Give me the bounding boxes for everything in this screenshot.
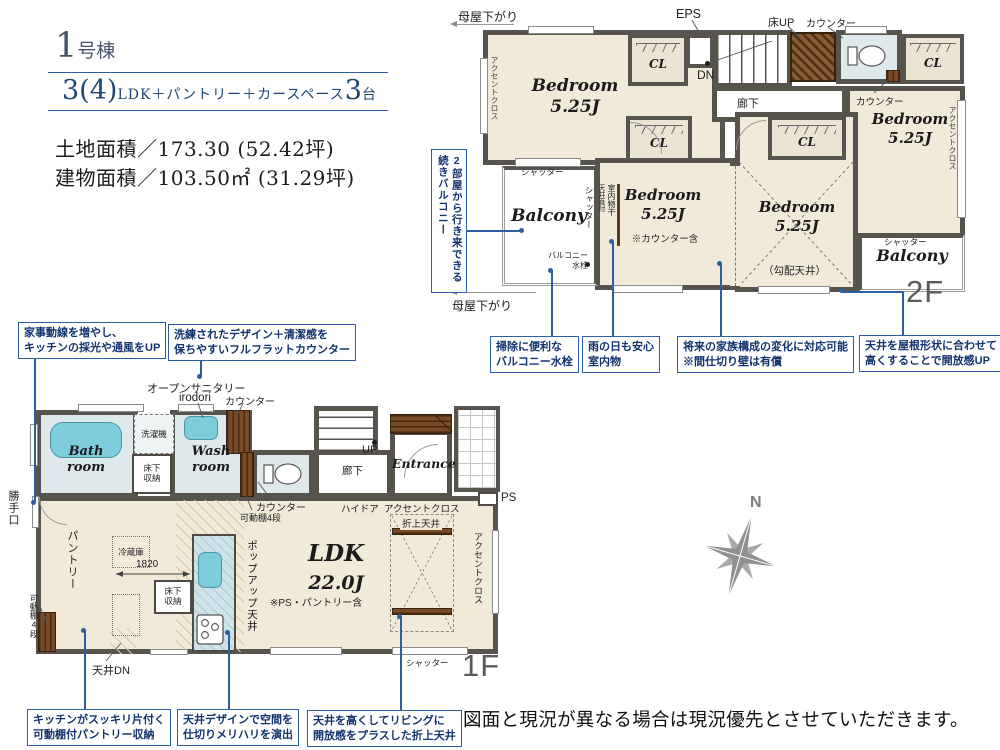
sloped-ceiling-note: （勾配天井） xyxy=(763,263,826,278)
f1-toilet-shelf-wood xyxy=(240,452,254,497)
dimension-1820: 1820 xyxy=(136,559,158,570)
leader-line xyxy=(720,264,722,337)
counter-included-note: ※カウンター含 xyxy=(613,231,717,245)
floor-up-label: 床UP xyxy=(768,14,794,30)
closet-label: CL xyxy=(924,56,942,70)
balcony-left-name: Balcony xyxy=(510,206,588,227)
window xyxy=(613,285,683,293)
compass-north-label: N xyxy=(750,494,762,512)
window xyxy=(392,647,468,655)
window xyxy=(758,286,830,294)
callout-line: 掃除に便利な xyxy=(496,341,562,353)
callout-line: 室内物 xyxy=(588,356,621,368)
unit-title: 1号棟 xyxy=(55,26,115,66)
bedroom-topleft-name: Bedroom 5.25J xyxy=(505,76,645,119)
eps-label: EPS xyxy=(676,7,701,21)
hallway-label-1f: 廊下 xyxy=(342,463,363,478)
f1-washer-space: 洗濯機 xyxy=(134,414,174,454)
room-size: 5.25J xyxy=(888,129,932,147)
window xyxy=(957,100,966,218)
room-size: 22.0J xyxy=(308,572,363,594)
room-name: Bedroom xyxy=(625,186,702,204)
closet-label: CL xyxy=(649,57,667,71)
callout-line: 2部屋から行き来できる xyxy=(451,155,463,283)
compass-rose-icon xyxy=(688,494,796,610)
callout-line: 高くすることで開放感UP xyxy=(865,355,990,367)
building-area: 建物面積／103.50㎡ (31.29坪) xyxy=(55,162,355,191)
callout-line: 天井を高くしてリビングに xyxy=(313,715,445,727)
bathroom-name: Bath room xyxy=(54,444,118,477)
accent-cloth-label-1f-h: アクセントクロス xyxy=(384,501,460,515)
f2-closet-sloped: CL xyxy=(768,116,846,160)
room-name: room xyxy=(67,460,105,475)
moya-sagari-top-label: 母屋下がり xyxy=(458,8,518,25)
ldk-note: ※PS・パントリー含 xyxy=(270,594,362,609)
f1-porch xyxy=(454,406,500,492)
room-size: 5.25J xyxy=(550,97,599,117)
callout-line: 開放感をプラスした折上天井 xyxy=(313,730,456,742)
high-door-label: ハイドア xyxy=(341,501,379,515)
f1-floor-storage-wash: 床下収納 xyxy=(132,454,172,494)
disclaimer-text: 図面と現況が異なる場合は現況優先とさせていただきます。 xyxy=(463,706,969,732)
window xyxy=(492,530,499,614)
back-door-label: 勝手口 xyxy=(5,490,21,540)
coffered-ceiling-label: 折上天井 xyxy=(400,516,442,530)
callout-line: 洗練されたデザイン＋清潔感を xyxy=(174,329,328,341)
callout-future-partition: 将来の家族構成の変化に対応可能 ※間仕切り壁は有償 xyxy=(677,336,854,373)
room-name: Bedroom xyxy=(532,76,619,96)
fridge-label: 冷蔵庫 xyxy=(118,546,144,558)
faucet-dot xyxy=(585,262,590,267)
window xyxy=(178,404,214,412)
faucet-line1: バルコニー xyxy=(548,251,588,260)
counter-label-2f-bedroom: カウンター xyxy=(856,94,904,108)
callout-line: 可動棚付パントリー収納 xyxy=(33,729,155,741)
f2-stairs xyxy=(712,30,792,88)
plan-number: 3(4) xyxy=(62,75,117,106)
callout-line: 天井を屋根形状に合わせて xyxy=(865,340,997,352)
room-size: 5.25J xyxy=(775,217,819,235)
counter-label-1f-top: カウンター xyxy=(225,393,275,408)
room-name: Bedroom xyxy=(759,198,836,216)
callout-line: ※間仕切り壁は有償 xyxy=(683,356,782,368)
shutter-label-2f-right: シャッター xyxy=(884,236,927,248)
callout-housework-line: 家事動線を増やし、 キッチンの採光や通風をUP xyxy=(18,322,166,359)
land-area: 土地面積／173.30 (52.42坪) xyxy=(55,133,334,162)
leader-line xyxy=(612,242,614,337)
leader-dot xyxy=(31,500,36,505)
leader-dot xyxy=(548,268,553,273)
counter-label-2f-top: カウンター xyxy=(806,15,856,30)
irodori-label: irodori xyxy=(179,392,211,404)
header-rule-top xyxy=(48,72,388,73)
storage-label: 床下収納 xyxy=(143,464,160,484)
dn-dot xyxy=(705,61,710,66)
plan-cars-unit: 台 xyxy=(362,84,376,104)
closet-label: CL xyxy=(798,135,816,149)
tenjo-jika-text: 天井直付 xyxy=(598,184,605,212)
room-name: Bedroom xyxy=(872,110,949,128)
callout-pantry-storage: キッチンがスッキリ片付く 可動棚付パントリー収納 xyxy=(27,709,171,746)
window xyxy=(270,647,342,655)
plan-description: LDK＋パントリー＋カースペース xyxy=(117,84,344,104)
sink-icon xyxy=(184,416,218,440)
leader-dot xyxy=(839,288,844,293)
f1-ps-shaft xyxy=(478,492,498,506)
callout-line: 雨の日も安心 xyxy=(588,341,654,353)
shutter-label-1f: シャッター xyxy=(406,657,449,669)
leader-dot xyxy=(225,630,230,635)
hallway-label-2f: 廊下 xyxy=(737,95,759,111)
balcony-right-name: Balcony xyxy=(872,246,952,266)
kitchen-sink-icon xyxy=(198,552,222,588)
ceiling-down-label: 天井DN xyxy=(92,662,130,678)
accent-cloth-label-1f-v: アクセントクロス xyxy=(472,532,485,614)
shutter-label-2f-vertical: シャッター xyxy=(583,186,595,256)
closet-rail-icon xyxy=(910,43,955,52)
pantry-shelf-wood xyxy=(38,612,56,652)
callout-line: 保ちやすいフルフラットカウンター xyxy=(174,344,350,356)
closet-rail-icon xyxy=(636,43,680,52)
ldk-name: LDK 22.0J xyxy=(294,540,378,595)
toilet-icon xyxy=(262,458,306,490)
room-size: 5.25J xyxy=(641,205,685,223)
leader-dot xyxy=(609,239,614,244)
callout-coffered-ceiling: 天井を高くしてリビングに 開放感をプラスした折上天井 xyxy=(307,710,462,747)
bedroom-mid-name: Bedroom 5.25J xyxy=(598,186,728,224)
f2-floor-up-storage xyxy=(790,32,836,82)
callout-high-ceiling: 天井を屋根形状に合わせて 高くすることで開放感UP xyxy=(859,335,1000,372)
callout-line: キッチンがスッキリ片付く xyxy=(33,714,165,726)
washroom-name: Wash room xyxy=(180,444,242,477)
entrance-step-wood xyxy=(390,414,452,434)
window xyxy=(78,404,144,412)
moya-sagari-bottom-label: 母屋下がり xyxy=(452,297,512,314)
popup-ceiling-label: ポップアップ天井 xyxy=(245,540,260,640)
leader-line xyxy=(842,291,903,293)
unit-number: 1 xyxy=(55,26,77,66)
f2-closet-topright: CL xyxy=(902,34,964,84)
room-name: room xyxy=(192,460,230,475)
moya-arrowhead-icon xyxy=(450,21,457,27)
callout-line: 仕切りメリハリを演出 xyxy=(183,729,293,741)
shelf-label-1f-left: 可動棚4段 xyxy=(28,594,40,652)
leader-line xyxy=(84,631,86,709)
up-dot xyxy=(372,440,377,445)
pantry-shelf-dashed xyxy=(112,594,140,636)
moya-arrow-line-bottom xyxy=(456,292,536,293)
accent-cloth-label-2f-right: アクセントクロス xyxy=(947,106,958,206)
floor-label-2f: 2F xyxy=(906,274,944,310)
callout-line: 天井デザインで空間を xyxy=(183,714,293,726)
callout-line: 続きバルコニー xyxy=(437,155,449,236)
bedroom-sloped-name: Bedroom 5.25J xyxy=(742,198,852,236)
window xyxy=(528,26,594,34)
leader-line xyxy=(400,617,402,710)
up-label: UP xyxy=(362,444,377,456)
header-rule-bottom xyxy=(48,110,388,111)
pantry-label: パントリー xyxy=(64,530,80,606)
plan-type: 3(4) LDK＋パントリー＋カースペース 3 台 xyxy=(62,75,376,106)
down-label: DN xyxy=(697,68,714,82)
plan-cars: 3 xyxy=(345,75,362,106)
closet-rail-icon xyxy=(778,125,837,134)
shutter-label-2f-top: シャッター xyxy=(521,166,564,178)
leader-dot xyxy=(81,628,86,633)
leader-dot xyxy=(717,261,722,266)
f1-floor-storage-kitchen: 床下収納 xyxy=(154,580,192,614)
washer-label: 洗濯機 xyxy=(141,428,167,440)
shelf-label-1f-mid: 可動棚4段 xyxy=(240,511,281,524)
leader-line xyxy=(467,230,523,232)
floor-label-1f: 1F xyxy=(462,648,500,684)
callout-flat-counter: 洗練されたデザイン＋清潔感を 保ちやすいフルフラットカウンター xyxy=(168,324,356,361)
leader-line xyxy=(551,271,553,337)
unit-suffix: 号棟 xyxy=(77,40,115,62)
leader-dot xyxy=(197,374,202,379)
callout-line: 家事動線を増やし、 xyxy=(24,327,123,339)
room-name: Bath xyxy=(69,444,104,459)
callout-balcony-faucet: 掃除に便利な バルコニー水栓 xyxy=(490,336,579,373)
toilet-icon xyxy=(846,40,890,72)
callout-indoor-drying: 雨の日も安心 室内物 xyxy=(582,336,660,373)
callout-tsuzuki-balcony: 2部屋から行き来できる 続きバルコニー xyxy=(431,149,467,293)
callout-line: バルコニー水栓 xyxy=(496,356,573,368)
window xyxy=(480,58,488,134)
monohoshi-text: 室内物干 xyxy=(607,184,616,216)
entrance-name: Entrance xyxy=(392,456,450,472)
storage-label: 床下収納 xyxy=(164,587,181,607)
leader-line xyxy=(902,291,904,336)
callout-ceiling-design: 天井デザインで空間を 仕切りメリハリを演出 xyxy=(177,709,299,746)
leader-dot xyxy=(397,614,402,619)
accent-cloth-label-2f-left: アクセントクロス xyxy=(489,56,500,152)
callout-line: キッチンの採光や通風をUP xyxy=(24,342,160,354)
leader-line xyxy=(228,633,230,709)
bedroom-right-name: Bedroom 5.25J xyxy=(862,110,958,148)
leader-dot xyxy=(519,228,524,233)
stove-icon xyxy=(196,614,226,646)
window xyxy=(150,649,188,655)
room-name: Wash xyxy=(192,444,231,459)
leader-line xyxy=(34,350,36,502)
f2-removable-partition xyxy=(735,166,738,286)
room-name: LDK xyxy=(308,540,364,567)
ps-label: PS xyxy=(501,492,516,504)
callout-line: 将来の家族構成の変化に対応可能 xyxy=(683,341,848,353)
floorplan-sheet: 1号棟 3(4) LDK＋パントリー＋カースペース 3 台 土地面積／173.3… xyxy=(0,0,1000,750)
